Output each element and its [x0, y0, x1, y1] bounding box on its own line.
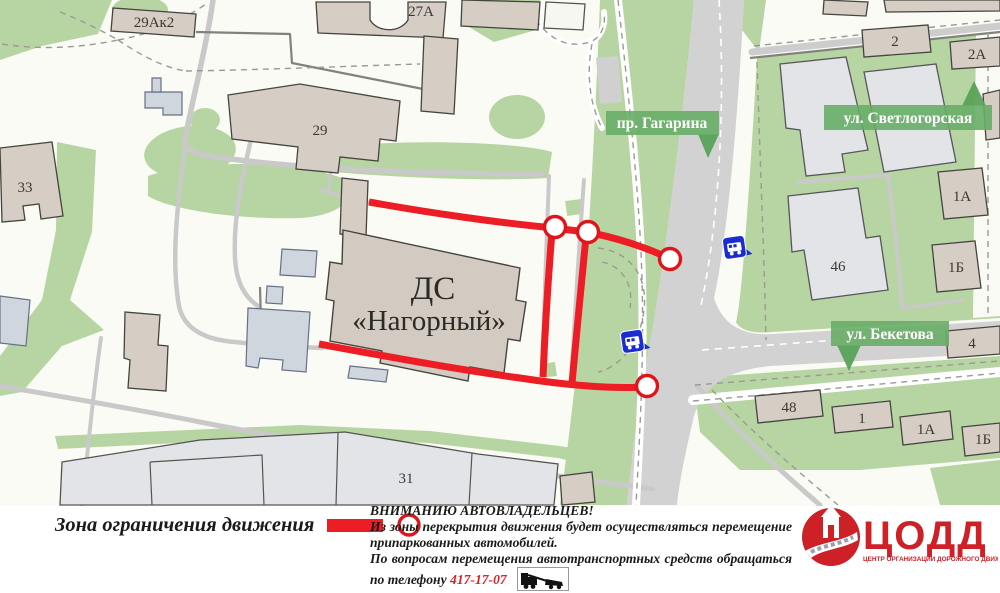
building-label-7: 1Б: [948, 260, 964, 276]
building-label-10: 48: [782, 400, 797, 416]
street-label-svetlogorskaya: ул. Светлогорская: [844, 110, 973, 127]
building-label-12: 1А: [917, 422, 936, 438]
building-label-11: 1: [858, 411, 866, 427]
building-label-14: 31: [399, 471, 414, 487]
building-label-5: 2А: [968, 47, 987, 63]
building-label-13: 1Б: [975, 432, 991, 448]
building-label-6: 1А: [953, 189, 972, 205]
restriction-endpoint-circle: [660, 249, 681, 270]
restriction-endpoint-circle: [545, 217, 566, 238]
legend: Зона ограничения движения: [55, 512, 422, 538]
legend-zone-label: Зона ограничения движения: [55, 514, 314, 537]
street-label-gagarina: пр. Гагарина: [617, 115, 708, 132]
venue-name-line1: ДС: [411, 271, 456, 307]
street-label-beketova: ул. Бекетова: [846, 326, 934, 343]
building-label-8: 46: [831, 259, 847, 275]
notice-body-1: Из зоны перекрытия движения будет осущес…: [370, 519, 792, 551]
restriction-endpoint-circle: [578, 222, 599, 243]
city-map: 29Ак2 27А 29 33 2 2А 1А 1Б 46 4 48 1 1А …: [0, 0, 1000, 506]
codd-logo: ЦОДД ЦЕНТР ОРГАНИЗАЦИИ ДОРОЖНОГО ДВИЖЕНИ…: [793, 497, 998, 577]
codd-logo-subtitle: ЦЕНТР ОРГАНИЗАЦИИ ДОРОЖНОГО ДВИЖЕНИЯ: [863, 556, 998, 563]
building-label-2: 29: [313, 123, 328, 139]
tow-truck-icon: [517, 567, 569, 591]
building-label-9: 4: [968, 336, 976, 352]
building-label-3: 33: [18, 180, 33, 196]
notice-title: ВНИМАНИЮ АВТОВЛАДЕЛЬЦЕВ!: [370, 503, 792, 519]
flyer: 29Ак2 27А 29 33 2 2А 1А 1Б 46 4 48 1 1А …: [0, 0, 1000, 593]
notice-body-2: По вопросам перемещения автотранспортных…: [370, 551, 792, 591]
building-label-1: 27А: [408, 4, 434, 20]
restriction-endpoint-circle: [637, 376, 658, 397]
venue-name-line2: «Нагорный»: [352, 305, 506, 337]
codd-logo-name: ЦОДД: [863, 514, 988, 558]
notice-phone-number: 417-17-07: [450, 572, 507, 587]
owner-notice: ВНИМАНИЮ АВТОВЛАДЕЛЬЦЕВ! Из зоны перекры…: [370, 503, 792, 591]
notice-body-2-text: По вопросам перемещения автотранспортных…: [370, 551, 792, 587]
building-label-0: 29Ак2: [134, 15, 175, 31]
building-label-4: 2: [891, 34, 899, 50]
